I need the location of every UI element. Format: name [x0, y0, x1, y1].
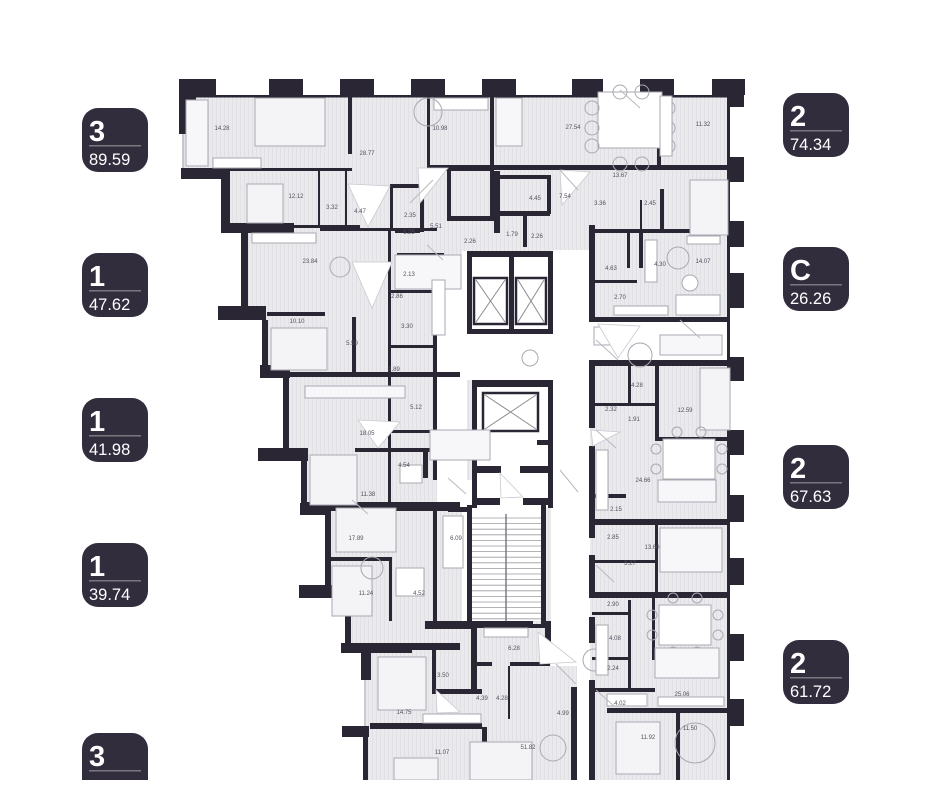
svg-text:2: 2: [790, 648, 806, 680]
svg-text:14.28: 14.28: [214, 126, 230, 132]
svg-text:4.02: 4.02: [614, 701, 626, 707]
svg-text:2.70: 2.70: [614, 295, 626, 301]
svg-text:74.34: 74.34: [790, 136, 831, 154]
svg-text:1: 1: [89, 261, 105, 293]
svg-text:11.92: 11.92: [641, 735, 656, 741]
svg-text:5.51: 5.51: [430, 224, 442, 230]
svg-text:3.30: 3.30: [401, 324, 413, 330]
svg-text:27.54: 27.54: [565, 125, 581, 131]
svg-text:11.24: 11.24: [359, 591, 374, 597]
svg-text:2.26: 2.26: [531, 234, 543, 240]
svg-text:1.79: 1.79: [506, 232, 518, 238]
svg-text:25.06: 25.06: [674, 692, 690, 698]
svg-text:2.35: 2.35: [404, 213, 416, 219]
svg-text:2.26: 2.26: [464, 239, 476, 245]
svg-text:18.05: 18.05: [359, 431, 375, 437]
svg-text:28.77: 28.77: [359, 151, 375, 157]
svg-text:5.12: 5.12: [410, 405, 422, 411]
svg-text:1: 1: [89, 551, 105, 583]
svg-text:13.60: 13.60: [644, 545, 660, 551]
svg-text:4.08: 4.08: [609, 636, 621, 642]
svg-text:11.50: 11.50: [683, 726, 698, 732]
svg-text:4.99: 4.99: [557, 711, 569, 717]
svg-text:14.75: 14.75: [396, 710, 412, 716]
svg-text:7.54: 7.54: [559, 194, 571, 200]
svg-text:61.72: 61.72: [790, 683, 831, 701]
svg-text:89.59: 89.59: [89, 151, 130, 169]
svg-text:12.12: 12.12: [288, 194, 304, 200]
svg-text:4.39: 4.39: [476, 696, 488, 702]
svg-text:39.74: 39.74: [89, 586, 130, 604]
svg-text:3.36: 3.36: [594, 201, 606, 207]
svg-text:4.54: 4.54: [398, 463, 410, 469]
svg-text:2.89: 2.89: [388, 367, 400, 373]
svg-text:4.28: 4.28: [631, 383, 643, 389]
svg-text:13.67: 13.67: [612, 173, 628, 179]
svg-text:67.63: 67.63: [790, 488, 831, 506]
svg-text:4.45: 4.45: [529, 196, 541, 202]
svg-text:12.59: 12.59: [677, 408, 693, 414]
svg-text:23.84: 23.84: [302, 259, 318, 265]
svg-text:3.50: 3.50: [437, 673, 449, 679]
svg-text:2.13: 2.13: [403, 272, 415, 278]
svg-text:11.32: 11.32: [696, 122, 711, 128]
svg-text:26.26: 26.26: [790, 290, 831, 308]
svg-text:С: С: [790, 255, 811, 287]
svg-text:14.07: 14.07: [695, 259, 711, 265]
svg-text:2.86: 2.86: [391, 294, 403, 300]
svg-text:2: 2: [790, 453, 806, 485]
svg-text:2.32: 2.32: [605, 407, 617, 413]
svg-text:3: 3: [89, 741, 105, 773]
svg-text:2.85: 2.85: [607, 535, 619, 541]
svg-text:6.28: 6.28: [508, 646, 520, 652]
svg-text:4.47: 4.47: [354, 209, 366, 215]
svg-text:3.27: 3.27: [624, 561, 636, 567]
svg-text:47.62: 47.62: [89, 296, 130, 314]
svg-text:2.15: 2.15: [610, 507, 622, 513]
svg-text:4.30: 4.30: [654, 262, 666, 268]
svg-text:11.38: 11.38: [361, 492, 376, 498]
svg-text:4.63: 4.63: [605, 266, 617, 272]
svg-text:2: 2: [790, 101, 806, 133]
svg-text:10.98: 10.98: [432, 126, 448, 132]
svg-text:3: 3: [89, 116, 105, 148]
svg-text:1: 1: [89, 406, 105, 438]
svg-text:24.66: 24.66: [635, 478, 651, 484]
svg-text:6.09: 6.09: [450, 536, 462, 542]
svg-text:11.07: 11.07: [435, 750, 450, 756]
svg-text:17.89: 17.89: [348, 536, 364, 542]
svg-text:51.82: 51.82: [520, 745, 536, 751]
svg-text:41.98: 41.98: [89, 441, 130, 459]
svg-text:3.32: 3.32: [326, 205, 338, 211]
svg-text:1.25: 1.25: [403, 230, 415, 236]
svg-text:2.24: 2.24: [607, 666, 619, 672]
svg-text:5.59: 5.59: [346, 341, 358, 347]
svg-text:2.90: 2.90: [607, 602, 619, 608]
svg-text:4.28: 4.28: [496, 696, 508, 702]
svg-text:2.45: 2.45: [644, 201, 656, 207]
svg-text:4.52: 4.52: [413, 591, 425, 597]
svg-text:10.10: 10.10: [289, 319, 305, 325]
svg-text:1.91: 1.91: [628, 417, 640, 423]
